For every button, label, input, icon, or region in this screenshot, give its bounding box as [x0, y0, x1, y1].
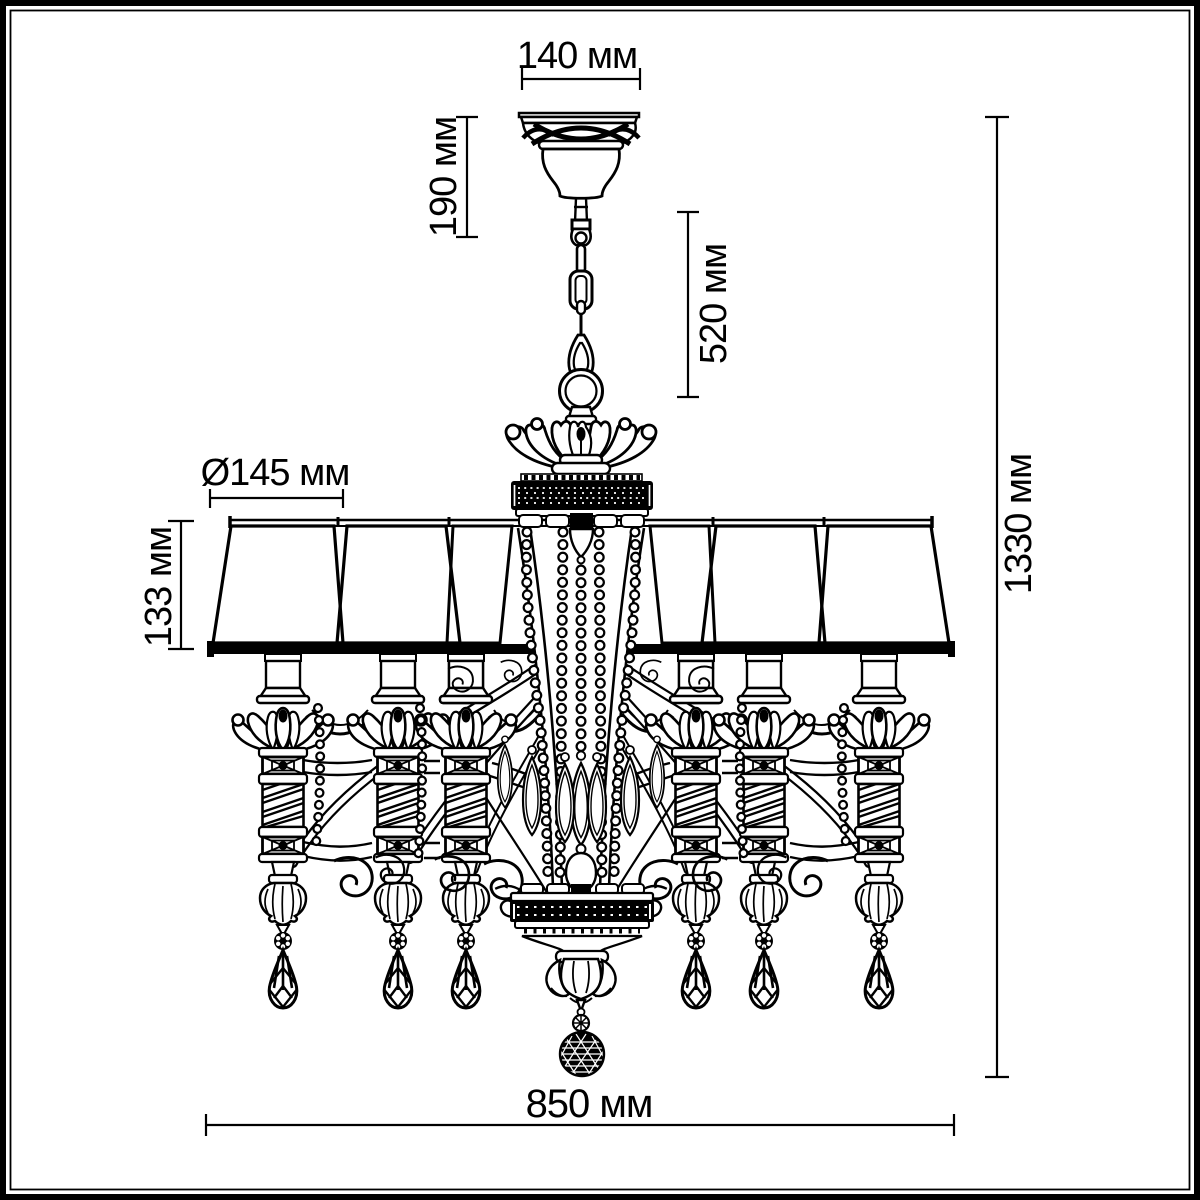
svg-text:1330 мм: 1330 мм [998, 454, 1040, 594]
svg-text:520 мм: 520 мм [693, 244, 735, 364]
svg-text:Ø145 мм: Ø145 мм [201, 452, 350, 494]
svg-text:140 мм: 140 мм [517, 35, 637, 77]
svg-text:850 мм: 850 мм [526, 1082, 653, 1126]
svg-text:133 мм: 133 мм [138, 527, 180, 647]
svg-text:190 мм: 190 мм [423, 117, 465, 237]
